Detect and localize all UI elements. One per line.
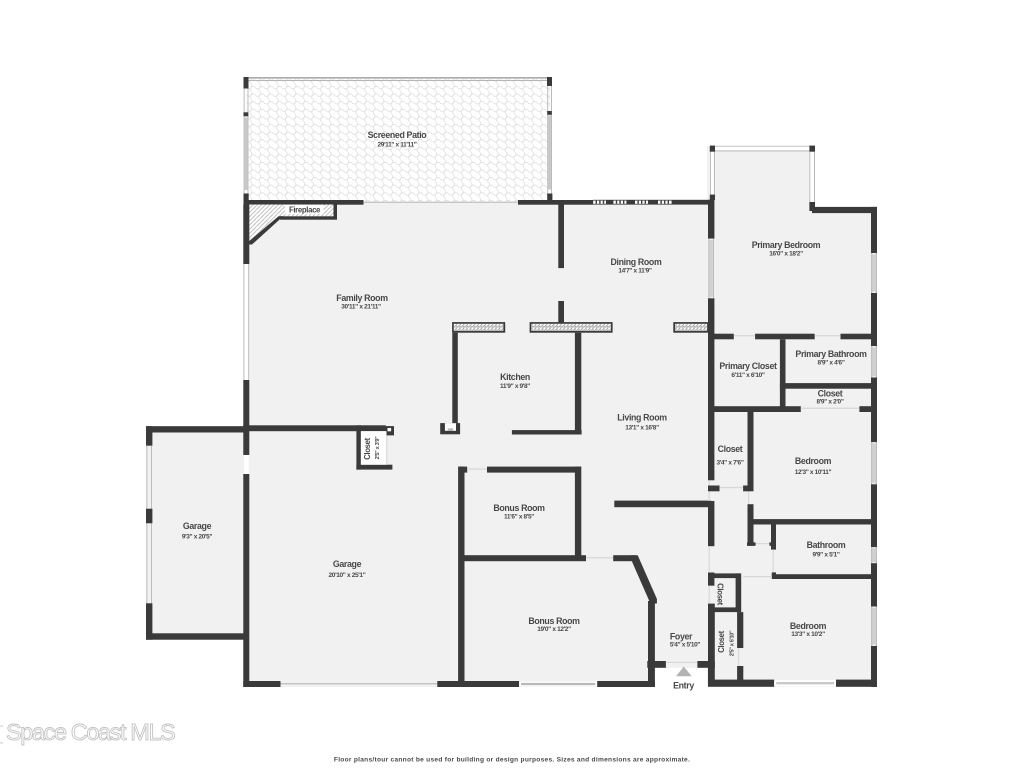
svg-text:13'1" x 16'8": 13'1" x 16'8" xyxy=(625,425,659,432)
svg-text:Garage: Garage xyxy=(183,521,212,531)
svg-text:Closet: Closet xyxy=(363,437,372,459)
svg-text:3'4" x 7'6": 3'4" x 7'6" xyxy=(716,460,743,467)
svg-text:Screened Patio: Screened Patio xyxy=(368,130,428,140)
svg-text:2'5" x 6'10": 2'5" x 6'10" xyxy=(730,630,736,656)
svg-text:11'9" x 9'8": 11'9" x 9'8" xyxy=(500,383,530,390)
svg-text:12'3" x 10'11": 12'3" x 10'11" xyxy=(795,469,832,476)
svg-text:20'10" x 25'1": 20'10" x 25'1" xyxy=(329,572,366,579)
svg-text:9'3" x 20'5": 9'3" x 20'5" xyxy=(182,534,213,541)
svg-text:13'3" x 10'2": 13'3" x 10'2" xyxy=(791,631,825,638)
svg-text:Bedroom: Bedroom xyxy=(790,621,827,631)
svg-text:Garage: Garage xyxy=(333,559,362,569)
svg-text:Living Room: Living Room xyxy=(617,413,667,423)
svg-text:Foyer: Foyer xyxy=(670,632,693,642)
svg-text:Primary Bathroom: Primary Bathroom xyxy=(795,349,867,359)
svg-text:14'7" x 11'9": 14'7" x 11'9" xyxy=(618,268,652,275)
svg-text:11'6" x 8'5": 11'6" x 8'5" xyxy=(504,514,534,521)
svg-text:2'5" x 3'9": 2'5" x 3'9" xyxy=(375,436,381,459)
svg-text:29'11" x 11'11": 29'11" x 11'11" xyxy=(377,142,416,149)
svg-text:Bonus Room: Bonus Room xyxy=(528,616,580,626)
svg-text:Closet: Closet xyxy=(716,583,725,605)
svg-text:Floor plans/tour cannot be use: Floor plans/tour cannot be used for buil… xyxy=(334,757,690,764)
svg-text:Bathroom: Bathroom xyxy=(807,540,846,550)
svg-text:30'11" x 21'11": 30'11" x 21'11" xyxy=(341,304,381,311)
svg-text:Closet: Closet xyxy=(818,389,843,399)
svg-text:8'9" x 2'0": 8'9" x 2'0" xyxy=(816,399,843,406)
svg-text:Bedroom: Bedroom xyxy=(795,456,832,466)
svg-text:Closet: Closet xyxy=(717,630,726,652)
svg-text:Entry: Entry xyxy=(673,681,694,691)
svg-text:19'0" x 12'2": 19'0" x 12'2" xyxy=(537,626,571,633)
svg-text:Kitchen: Kitchen xyxy=(500,372,530,382)
svg-text:16'0" x 18'2": 16'0" x 18'2" xyxy=(769,251,803,258)
svg-text:Dining Room: Dining Room xyxy=(611,257,662,267)
svg-text:8'9" x 4'6": 8'9" x 4'6" xyxy=(817,360,844,367)
svg-text:5'4" x 5'10": 5'4" x 5'10" xyxy=(670,642,701,649)
svg-text:9'9" x 5'1": 9'9" x 5'1" xyxy=(812,552,839,559)
svg-text:Primary Bedroom: Primary Bedroom xyxy=(752,240,821,250)
svg-text:Primary Closet: Primary Closet xyxy=(719,361,777,371)
svg-text:Family Room: Family Room xyxy=(336,293,388,303)
svg-text:Closet: Closet xyxy=(718,444,743,454)
svg-text:Space Coast MLS: Space Coast MLS xyxy=(6,719,175,745)
svg-text:6'11" x 6'10": 6'11" x 6'10" xyxy=(731,372,765,379)
svg-text:Fireplace: Fireplace xyxy=(289,206,321,215)
svg-text:Bonus Room: Bonus Room xyxy=(493,503,545,513)
